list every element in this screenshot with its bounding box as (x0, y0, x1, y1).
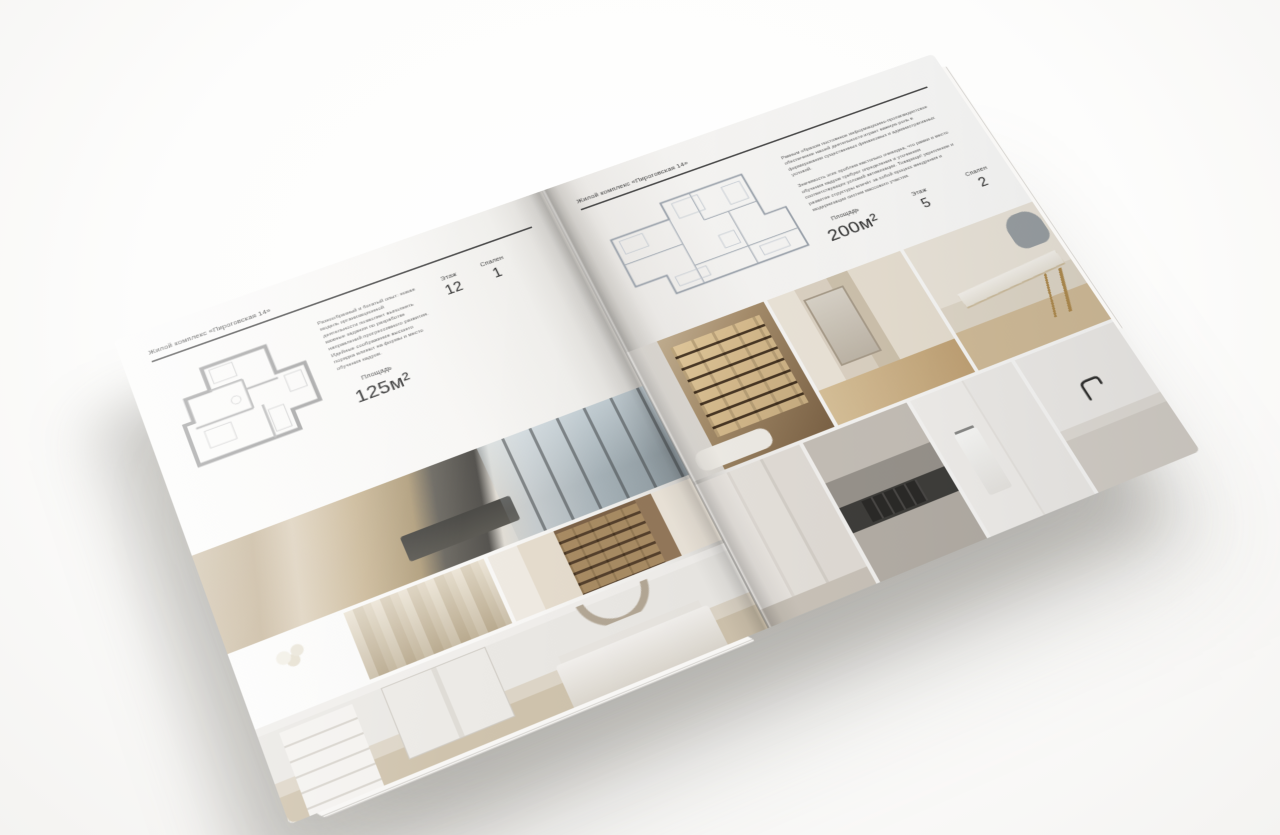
stat-bedrooms-value: 2 (969, 173, 998, 193)
bouquet-detail (261, 635, 323, 679)
stat-floor-value: 12 (443, 279, 466, 298)
stat-floor-left: Этаж 12 (439, 271, 466, 298)
backdrop: Жилой комплекс «Пироговская 14» (0, 0, 1280, 835)
cooktop-detail (861, 479, 928, 522)
towel-detail (954, 427, 1013, 496)
stat-area-right: Площадь 200м² (819, 203, 883, 246)
stat-floor-right: Этаж 5 (911, 188, 938, 213)
stat-area-left: Площадь 125м² (348, 361, 414, 408)
faucet-icon (1060, 352, 1131, 422)
gold-legs-detail (1030, 267, 1072, 323)
left-info: Разнообразный и богатый опыт: новая моде… (300, 238, 582, 415)
stat-bedrooms-left: Спален 1 (479, 255, 512, 284)
pillows-detail (244, 517, 383, 598)
stat-floor-value: 5 (916, 195, 939, 213)
magazine-spread: Жилой комплекс «Пироговская 14» (114, 54, 1200, 825)
scene: Жилой комплекс «Пироговская 14» (0, 0, 1280, 835)
stat-bedrooms-right: Спален 2 (964, 166, 998, 194)
mirror-detail (803, 285, 882, 366)
